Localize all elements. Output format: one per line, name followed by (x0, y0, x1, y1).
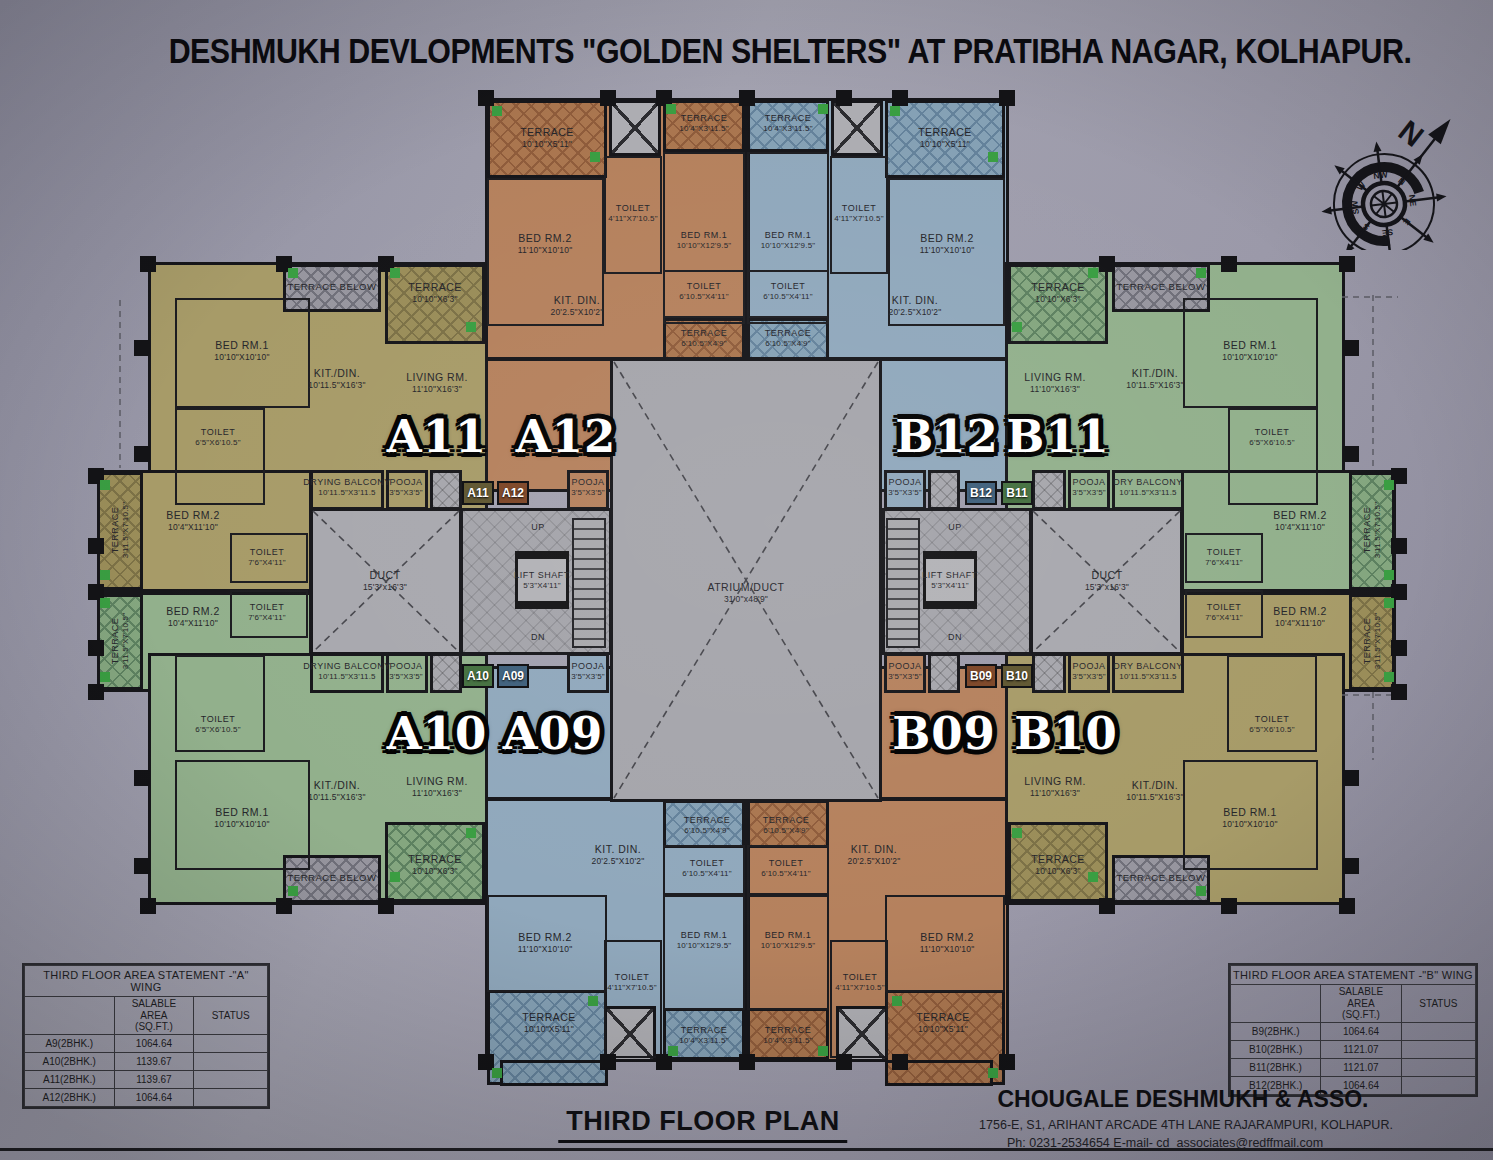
cell-unit: B9(2BHK.) (1231, 1022, 1321, 1040)
stairs-dn-label: DN (531, 632, 545, 643)
room-label-pooja: POOJA3'5"X3'5" (389, 661, 423, 681)
room-label-bed1_sq: BED RM.110'10"X10'10" (214, 806, 269, 829)
unit-label-b09: B09 (892, 707, 996, 760)
room-label-bed2_sd: BED RM.210'4"X11'10" (1273, 605, 1327, 628)
unit-label-a12: A12 (516, 410, 617, 463)
stairs-up-label: UP (531, 522, 545, 533)
col-header-status: STATUS (1401, 985, 1475, 1023)
plan-title: THIRD FLOOR PLAN (558, 1106, 847, 1143)
room-label-terrace_b: TERRACE10'4"X3'11.5" (763, 113, 812, 133)
cell-area: 1139.67 (114, 1052, 194, 1070)
room-label-toilet_d: TOILET7'6"X4'11" (248, 547, 286, 567)
unit-tag-text: B10 (1006, 669, 1028, 683)
room-label-pooja: POOJA3'5"X3'5" (888, 661, 922, 681)
compass-point-nw: NW (1373, 169, 1389, 181)
room-label-bed2_lg: BED RM.211'10"X10'10" (518, 931, 573, 954)
col-header-area: SALABLE AREA(SQ.FT.) (114, 997, 194, 1035)
room-label-toilet_d: TOILET7'6"X4'11" (1205, 602, 1243, 622)
cell-status (194, 1088, 268, 1106)
room-label-bed2_lg: BED RM.211'10"X10'10" (518, 232, 573, 255)
room-wall (175, 655, 265, 752)
shaft-box (928, 470, 960, 510)
room-label-toilet_b: TOILET6'10.5"X4'11" (761, 858, 810, 878)
shaft-box (430, 470, 462, 510)
terrace (500, 1060, 608, 1086)
cell-unit: A12(2BHK.) (25, 1088, 115, 1106)
unit-tag-text: B09 (970, 669, 992, 683)
cell-status (1401, 1058, 1475, 1076)
room-label-drying_balcony: DRYING BALCONY10'11.5"X3'11.5 (303, 477, 390, 497)
table-row: B11(2BHK.)1121.07 (1231, 1058, 1476, 1076)
room-label-kitdin_c: KIT. DIN.20'2.5"X10'2" (591, 843, 644, 866)
sheet-bottom-rule (0, 1148, 1493, 1151)
table-row: A11(2BHK.)1139.67 (25, 1070, 268, 1088)
lift-shaft-label: LIFT SHAFT5'3"X4'11" (922, 570, 977, 590)
unit-tag-text: A11 (467, 486, 488, 500)
compass-north-label: N (1393, 114, 1430, 153)
unit-tag-text: A12 (502, 486, 524, 500)
architect-address: 1756-E, S1, ARIHANT ARCADE 4TH LANE RAJA… (979, 1118, 1393, 1132)
cell-status (194, 1070, 268, 1088)
room-label-kitdin_c: KIT. DIN.20'2.5"X10'2" (550, 294, 603, 317)
room-label-terrace_b: TERRACE10'4"X3'11.5" (679, 113, 728, 133)
room-label-toilet_c: TOILET6'5"X6'10.5" (1249, 714, 1294, 734)
room-label-kitdin_w: KIT./DIN.10'11.5"X16'3" (1126, 779, 1183, 802)
vent-shaft (831, 100, 883, 156)
room-label-bed1_lg: BED RM.110'10"X12'9.5" (761, 930, 816, 950)
room-label-terrace_d: TERRACE10'10"X6'3" (1031, 281, 1085, 304)
unit-door-tag-b12: B12 (965, 481, 997, 505)
shaft-box (430, 653, 462, 693)
room-label-terrace_v: TERRACE3'11.5"X7'10.5" (110, 613, 130, 670)
table-row: A12(2BHK.)1064.64 (25, 1088, 268, 1106)
room-label-toilet_a: TOILET4'11"X7'10.5" (608, 203, 657, 223)
room-label-terrace_c: TERRACE6'10.5"X4'9" (763, 815, 810, 835)
area-table-a-wing: THIRD FLOOR AREA STATEMENT -"A" WING SAL… (22, 963, 270, 1109)
table-title: THIRD FLOOR AREA STATEMENT -"A" WING (25, 966, 268, 997)
room-label-terrace_d: TERRACE10'10"X6'3" (1031, 853, 1085, 876)
room-label-kitdin_w: KIT./DIN.10'11.5"X16'3" (308, 367, 365, 390)
room-label-toilet_b: TOILET6'10.5"X4'11" (679, 281, 728, 301)
room-label-terrace_below: TERRACE BELOW (1117, 872, 1206, 883)
unit-door-tag-b11: B11 (1001, 481, 1033, 505)
terrace (385, 264, 485, 344)
room-label-terrace_v: TERRACE3'11.5"X7'10.5" (110, 502, 130, 559)
unit-label-b12: B12 (895, 410, 999, 463)
stairs-up-label: UP (948, 522, 962, 533)
room-label-pooja: POOJA3'5"X3'5" (1072, 661, 1106, 681)
unit-door-tag-a11: A11 (462, 481, 494, 505)
cell-unit: A11(2BHK.) (25, 1070, 115, 1088)
room-wall (604, 940, 662, 1058)
room-label-terrace_c: TERRACE6'10.5"X4'9" (681, 328, 728, 348)
staircase-left (572, 518, 606, 648)
room-label-terrace_b: TERRACE10'4"X3'11.5" (763, 1025, 812, 1045)
room-label-pooja: POOJA3'5"X3'5" (1072, 477, 1106, 497)
room-label-toilet_c: TOILET6'5"X6'10.5" (195, 427, 240, 447)
room-label-toilet_c: TOILET6'5"X6'10.5" (1249, 427, 1294, 447)
room-label-living: LIVING RM.11'10"X16'3" (406, 775, 468, 798)
room-label-toilet_a: TOILET4'11"X7'10.5" (835, 972, 884, 992)
cell-unit: A9(2BHK.) (25, 1034, 115, 1052)
compass-point-ne: NE (1407, 194, 1418, 207)
shaft-box (1032, 470, 1066, 510)
cell-status (1401, 1040, 1475, 1058)
room-label-toilet_b: TOILET6'10.5"X4'11" (682, 858, 731, 878)
room-label-pooja: POOJA3'5"X3'5" (571, 477, 605, 497)
room-label-toilet_d: TOILET7'6"X4'11" (1205, 547, 1243, 567)
room-label-terrace_a: TERRACE10'10"X5'11" (916, 1011, 970, 1034)
room-label-terrace_a: TERRACE10'10"X5'11" (522, 1011, 576, 1034)
cell-unit: A10(2BHK.) (25, 1052, 115, 1070)
unit-tag-text: A09 (502, 669, 524, 683)
room-label-terrace_below: TERRACE BELOW (1117, 281, 1206, 292)
col-header-area: SALABLE AREA(SQ.FT.) (1321, 985, 1401, 1023)
compass-point-sw: SW (1349, 199, 1361, 215)
room-label-dry_balcony: DRY BALCONY10'11.5"X3'11.5 (1113, 477, 1183, 497)
room-label-terrace_v: TERRACE3'11.5"X7'10.5" (1362, 502, 1382, 559)
room-label-terrace_v: TERRACE3'11.5"X7'10.5" (1362, 613, 1382, 670)
room-label-living: LIVING RM.11'10"X16'3" (1024, 371, 1086, 394)
room-label-kitdin_w: KIT./DIN.10'11.5"X16'3" (308, 779, 365, 802)
cell-status (194, 1034, 268, 1052)
duct-label: DUCT15'3"x16'3" (363, 569, 407, 592)
unit-label-a10: A10 (387, 707, 488, 760)
cell-area: 1064.64 (114, 1034, 194, 1052)
room-label-terrace_c: TERRACE6'10.5"X4'9" (765, 328, 812, 348)
unit-tag-text: A10 (467, 669, 489, 683)
cell-status (1401, 1022, 1475, 1040)
room-label-terrace_b: TERRACE10'4"X3'11.5" (679, 1025, 728, 1045)
room-wall (1227, 655, 1317, 752)
room-label-bed1_sq: BED RM.110'10"X10'10" (1222, 339, 1277, 362)
room-label-bed2_sd: BED RM.210'4"X11'10" (166, 605, 220, 628)
room-label-kitdin_c: KIT. DIN.20'2.5"X10'2" (847, 843, 900, 866)
room-wall (830, 940, 888, 1058)
shaft-box (928, 653, 960, 693)
room-label-bed1_lg: BED RM.110'10"X12'9.5" (677, 230, 732, 250)
room-label-living: LIVING RM.11'10"X16'3" (1024, 775, 1086, 798)
room-label-terrace_c: TERRACE6'10.5"X4'9" (684, 815, 731, 835)
table-row: A10(2BHK.)1139.67 (25, 1052, 268, 1070)
col-header-unit (1231, 985, 1321, 1023)
room-label-terrace_a: TERRACE10'10"X5'11" (520, 126, 574, 149)
cell-area: 1121.07 (1321, 1040, 1401, 1058)
floor-plan-sheet: DESHMUKH DEVLOPMENTS "GOLDEN SHELTERS" A… (0, 0, 1493, 1160)
area-table-b-wing: THIRD FLOOR AREA STATEMENT -"B" WING SAL… (1228, 963, 1478, 1097)
atrium-label: ATRIUM/DUCT31'0"x48'9" (707, 581, 784, 604)
room-label-bed1_lg: BED RM.110'10"X12'9.5" (761, 230, 816, 250)
room-label-pooja: POOJA3'5"X3'5" (571, 661, 605, 681)
table-row: B10(2BHK.)1121.07 (1231, 1040, 1476, 1058)
cell-status (1401, 1076, 1475, 1094)
room-label-bed2_sd: BED RM.210'4"X11'10" (1273, 509, 1327, 532)
col-header-status: STATUS (194, 997, 268, 1035)
room-label-terrace_d: TERRACE10'10"X6'3" (408, 281, 462, 304)
vent-shaft (609, 100, 661, 156)
stairs-dn-label: DN (948, 632, 962, 643)
room-label-bed1_lg: BED RM.110'10"X12'9.5" (677, 930, 732, 950)
room-label-pooja: POOJA3'5"X3'5" (389, 477, 423, 497)
compass-rose: N NE E SE S SW W NW N (1318, 82, 1468, 250)
room-label-bed2_lg: BED RM.211'10"X10'10" (920, 931, 975, 954)
unit-label-b10: B10 (1014, 707, 1118, 760)
unit-tag-text: B12 (970, 486, 992, 500)
table-row: A9(2BHK.)1064.64 (25, 1034, 268, 1052)
unit-label-a11: A11 (387, 410, 488, 463)
room-label-bed1_sq: BED RM.110'10"X10'10" (1222, 806, 1277, 829)
col-header-unit (25, 997, 115, 1035)
room-wall (747, 895, 829, 1010)
terrace-plants (0, 0, 10, 10)
unit-tag-text: B11 (1006, 486, 1027, 500)
room-label-terrace_below: TERRACE BELOW (288, 281, 377, 292)
unit-door-tag-b10: B10 (1001, 664, 1033, 688)
unit-door-tag-b09: B09 (965, 664, 997, 688)
room-label-living: LIVING RM.11'10"X16'3" (406, 371, 468, 394)
duct-label: DUCT15'3"x16'3" (1085, 569, 1129, 592)
room-label-bed2_sd: BED RM.210'4"X11'10" (166, 509, 220, 532)
compass-point-se: SE (1381, 227, 1394, 238)
room-label-toilet_a: TOILET4'11"X7'10.5" (607, 972, 656, 992)
cell-area: 1064.64 (1321, 1022, 1401, 1040)
room-label-bed1_sq: BED RM.110'10"X10'10" (214, 339, 269, 362)
room-label-toilet_c: TOILET6'5"X6'10.5" (195, 714, 240, 734)
unit-door-tag-a10: A10 (462, 664, 494, 688)
room-wall (175, 408, 265, 505)
terrace (885, 1060, 993, 1086)
terrace (1008, 264, 1108, 344)
cell-area: 1064.64 (114, 1088, 194, 1106)
unit-label-b11: B11 (1006, 410, 1110, 463)
cell-status (194, 1052, 268, 1070)
room-label-kitdin_c: KIT. DIN.20'2.5"X10'2" (888, 294, 941, 317)
cell-unit: B10(2BHK.) (1231, 1040, 1321, 1058)
room-label-dry_balcony: DRY BALCONY10'11.5"X3'11.5 (1113, 661, 1183, 681)
table-row: B9(2BHK.)1064.64 (1231, 1022, 1476, 1040)
unit-label-a09: A09 (503, 707, 604, 760)
room-label-toilet_d: TOILET7'6"X4'11" (248, 602, 286, 622)
staircase-right (886, 518, 920, 648)
room-label-kitdin_w: KIT./DIN.10'11.5"X16'3" (1126, 367, 1183, 390)
room-label-drying_balcony: DRYING BALCONY10'11.5"X3'11.5 (303, 661, 390, 681)
room-label-terrace_d: TERRACE10'10"X6'3" (408, 853, 462, 876)
architect-firm-name: CHOUGALE DESHMUKH & ASSO. (998, 1086, 1369, 1113)
room-wall (1228, 408, 1318, 505)
table-title: THIRD FLOOR AREA STATEMENT -"B" WING (1231, 966, 1476, 985)
shaft-box (1032, 653, 1066, 693)
room-label-toilet_b: TOILET6'10.5"X4'11" (763, 281, 812, 301)
room-label-bed2_lg: BED RM.211'10"X10'10" (920, 232, 975, 255)
lift-shaft-label: LIFT SHAFT5'3"X4'11" (514, 570, 569, 590)
room-label-terrace_below: TERRACE BELOW (288, 872, 377, 883)
room-label-terrace_a: TERRACE10'10"X5'11" (918, 126, 972, 149)
room-label-toilet_a: TOILET4'11"X7'10.5" (834, 203, 883, 223)
room-label-pooja: POOJA3'5"X3'5" (888, 477, 922, 497)
cell-area: 1139.67 (114, 1070, 194, 1088)
cell-unit: B11(2BHK.) (1231, 1058, 1321, 1076)
cell-area: 1121.07 (1321, 1058, 1401, 1076)
unit-door-tag-a09: A09 (497, 664, 529, 688)
unit-door-tag-a12: A12 (497, 481, 529, 505)
room-wall (663, 895, 745, 1010)
